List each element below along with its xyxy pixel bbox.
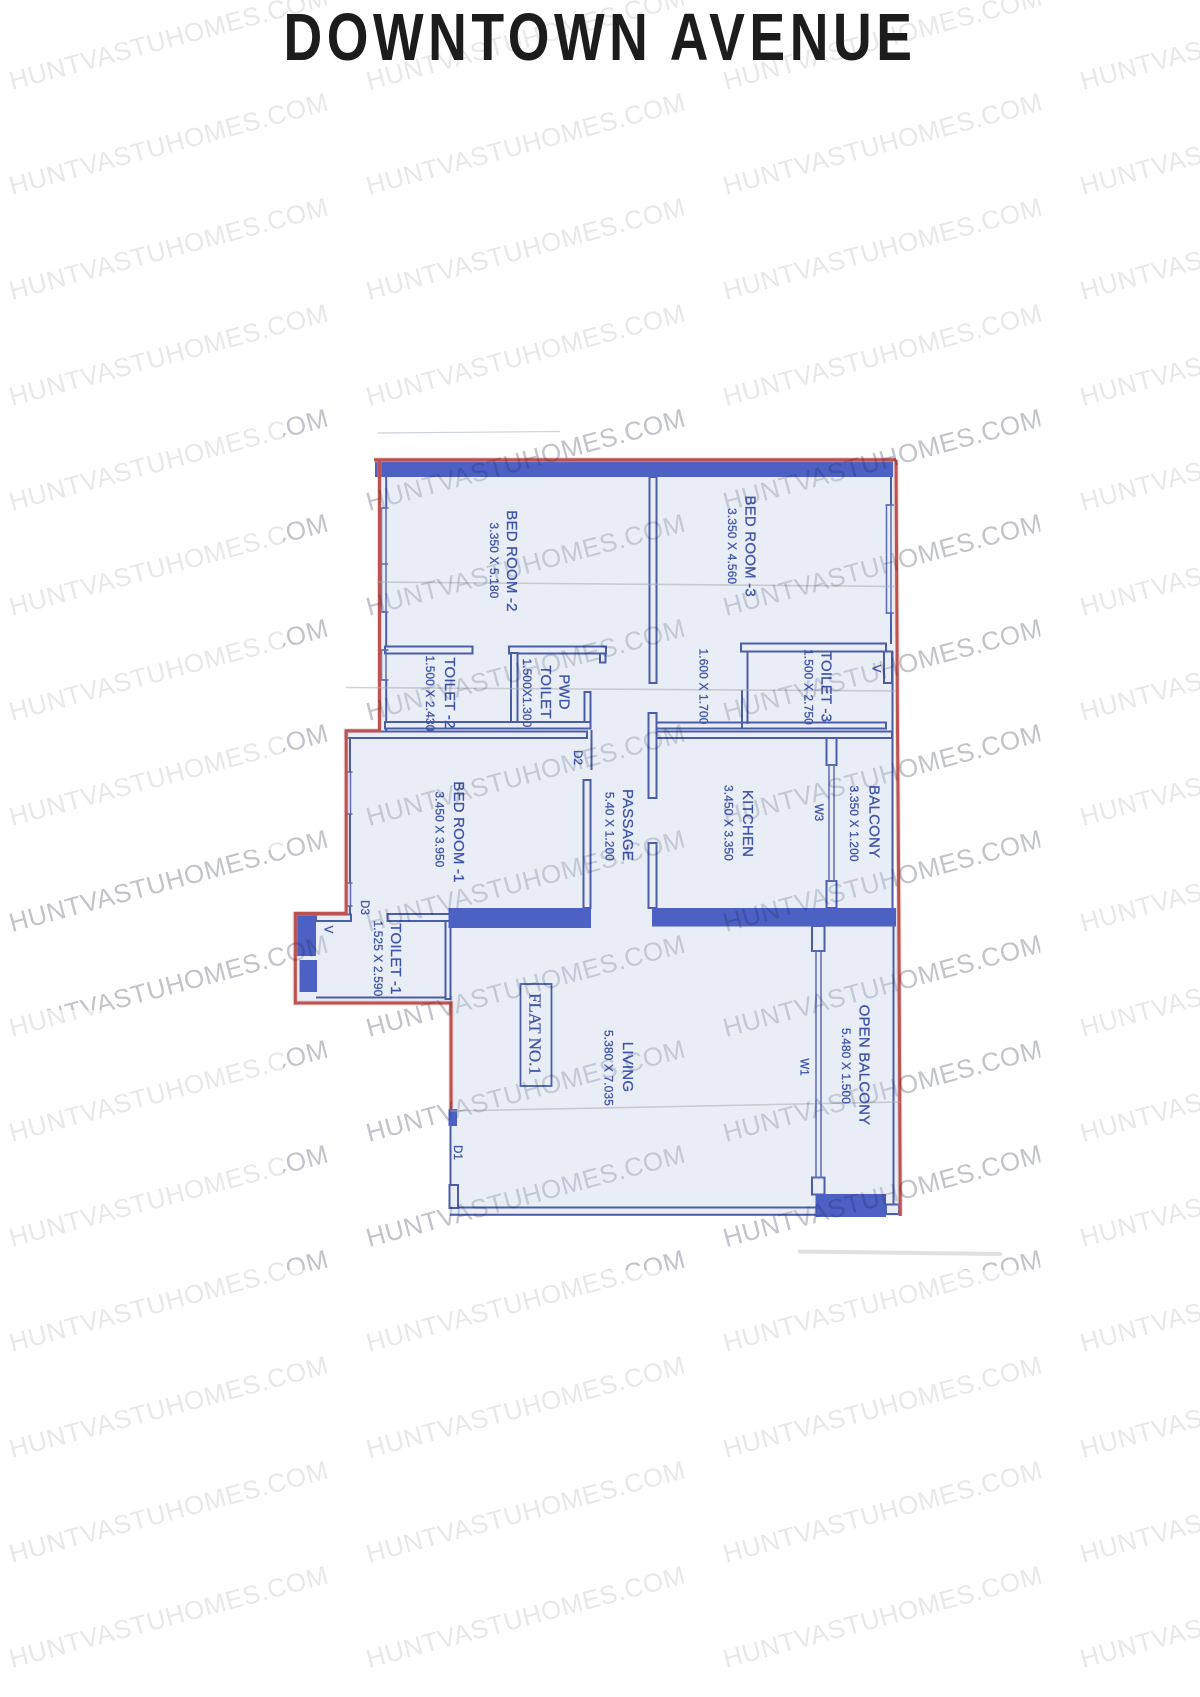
svg-text:1.600 X 1.700: 1.600 X 1.700: [697, 648, 711, 724]
svg-text:D1: D1: [451, 1145, 463, 1160]
svg-text:PWD: PWD: [556, 674, 573, 710]
svg-text:W1: W1: [798, 1058, 810, 1075]
svg-text:BALCONY: BALCONY: [866, 785, 883, 858]
svg-text:TOILET -1: TOILET -1: [387, 923, 404, 994]
svg-text:3.350 X 4.560: 3.350 X 4.560: [725, 508, 739, 584]
svg-text:FLAT NO.1: FLAT NO.1: [526, 993, 545, 1075]
svg-text:DOWNTOWN AVENUE: DOWNTOWN AVENUE: [283, 0, 916, 74]
